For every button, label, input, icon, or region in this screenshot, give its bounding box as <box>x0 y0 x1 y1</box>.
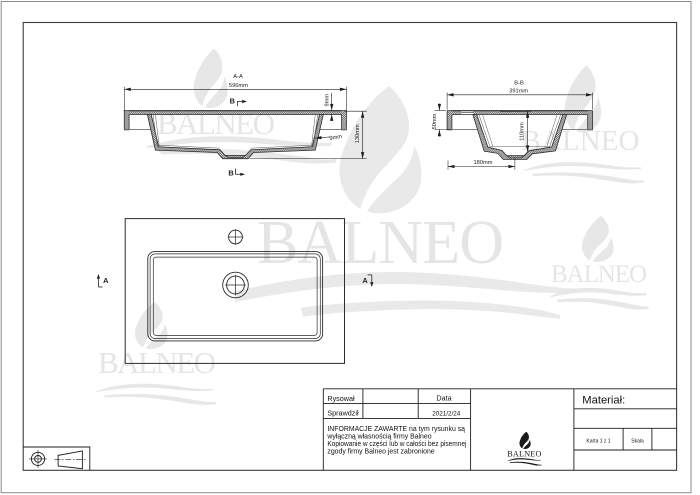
svg-text:Materiał:: Materiał: <box>582 394 625 406</box>
svg-text:B: B <box>228 169 233 178</box>
svg-text:Sprawdził: Sprawdził <box>327 409 359 418</box>
svg-text:Skala: Skala <box>631 438 644 444</box>
svg-text:A: A <box>362 276 368 285</box>
svg-text:A-A: A-A <box>233 74 243 80</box>
svg-text:BALNEO: BALNEO <box>551 261 647 288</box>
svg-text:Rysował: Rysował <box>327 394 355 403</box>
svg-text:INFORMACJE ZAWARTE na tym rysu: INFORMACJE ZAWARTE na tym rysunku są <box>327 426 465 433</box>
svg-text:BALNEO: BALNEO <box>257 209 504 277</box>
svg-text:Karta 1 z 1: Karta 1 z 1 <box>586 438 610 444</box>
svg-text:391mm: 391mm <box>509 89 528 95</box>
svg-text:50mm: 50mm <box>432 113 438 129</box>
svg-text:BALNEO: BALNEO <box>507 449 541 458</box>
svg-text:BALNEO: BALNEO <box>98 345 216 380</box>
svg-text:110mm: 110mm <box>520 122 526 141</box>
svg-text:596mm: 596mm <box>229 83 248 89</box>
svg-text:zgody firmy Balneo jest zabron: zgody firmy Balneo jest zabronione <box>327 448 434 455</box>
svg-text:B-B: B-B <box>514 80 524 86</box>
svg-text:B: B <box>230 97 235 106</box>
svg-text:180mm: 180mm <box>474 160 493 166</box>
svg-text:130mm: 130mm <box>355 124 361 143</box>
svg-text:Kopiowanie w części lub w cało: Kopiowanie w części lub w całości bez pi… <box>327 441 466 448</box>
svg-text:9mm: 9mm <box>324 94 330 107</box>
svg-text:wyłączną własnością firmy Baln: wyłączną własnością firmy Balneo <box>326 434 431 441</box>
svg-text:2021/2/24: 2021/2/24 <box>432 411 461 418</box>
svg-text:Data: Data <box>436 393 451 402</box>
svg-text:A: A <box>103 276 109 285</box>
